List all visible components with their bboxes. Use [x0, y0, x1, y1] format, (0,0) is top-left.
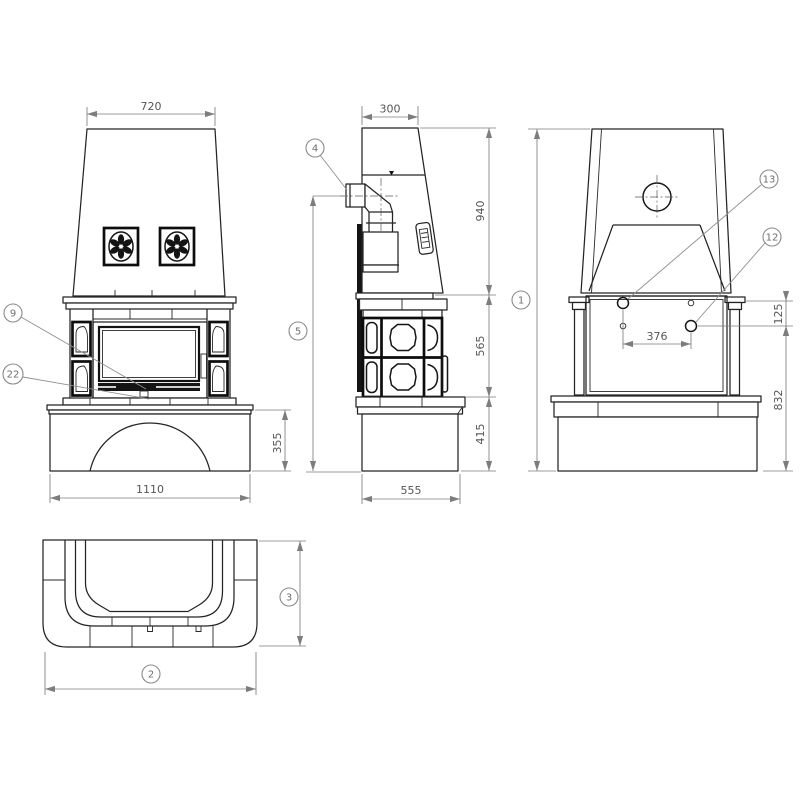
- svg-text:12: 12: [766, 233, 779, 244]
- vent-grille-left: [104, 228, 138, 265]
- base: [47, 405, 253, 471]
- outlet-hole-right: [686, 321, 697, 332]
- dim-label-555: 555: [401, 484, 422, 497]
- tile-grid-side: [363, 318, 448, 397]
- svg-text:2: 2: [148, 670, 154, 681]
- rear-view: 376 125 832 1 13 12: [512, 129, 793, 471]
- dim-body-height: 565: [466, 295, 496, 397]
- door-glass: [99, 327, 199, 381]
- dim-hood-top-depth: 300: [362, 103, 418, 126]
- callout-2: 2: [142, 665, 160, 683]
- door-handle: [116, 386, 156, 391]
- callout-4: 4: [306, 139, 347, 190]
- hood: [73, 129, 225, 296]
- hearth-shelf: [63, 398, 236, 405]
- air-louvre-top: [98, 383, 200, 386]
- fireplace-technical-drawing: 720 1110 355 9 22: [0, 0, 800, 800]
- hood-rear: [581, 129, 731, 296]
- callout-5: 5: [289, 322, 307, 340]
- dim-label-415: 415: [474, 424, 487, 445]
- dim-plinth-height: 415: [461, 397, 496, 471]
- front-view: 720 1110 355 9 22: [3, 100, 291, 503]
- dim-base-depth: 555: [362, 474, 460, 504]
- dim-label-565: 565: [474, 336, 487, 357]
- dim-outlet-floor-height: 832: [763, 326, 793, 471]
- dim-label-300: 300: [380, 103, 401, 116]
- base-side: [356, 397, 465, 471]
- ash-lip: [140, 391, 148, 397]
- svg-text:13: 13: [763, 175, 776, 186]
- svg-text:22: 22: [7, 370, 20, 381]
- dim-label-940: 940: [474, 201, 487, 222]
- svg-text:3: 3: [286, 593, 292, 604]
- dim-label-720: 720: [141, 100, 162, 113]
- side-view: 300 940 565 415 555 5: [289, 103, 496, 505]
- door-latch: [201, 354, 207, 378]
- dim-label-1110: 1110: [136, 483, 164, 496]
- svg-text:5: 5: [295, 327, 301, 338]
- technical-drawing-page: 720 1110 355 9 22: [0, 0, 800, 800]
- callout-3: 3: [280, 588, 298, 606]
- flue-outlet-hole: [635, 175, 679, 219]
- dim-flue-height: [306, 196, 361, 472]
- base-rear: [551, 396, 761, 471]
- dim-label-125: 125: [772, 304, 785, 325]
- shelf-side: [356, 293, 447, 318]
- svg-text:9: 9: [10, 309, 16, 320]
- dim-label-832: 832: [772, 390, 785, 411]
- firebox-side: [363, 232, 398, 272]
- svg-text:1: 1: [518, 296, 524, 307]
- vent-grille-right: [160, 228, 194, 265]
- dim-base-width: 1110: [50, 474, 250, 503]
- plan-tile-band: [65, 540, 234, 626]
- dim-hood-height: 940: [420, 128, 496, 295]
- fire-door: [93, 322, 207, 398]
- plan-inner-wall: [76, 540, 223, 617]
- callout-1: 1: [512, 291, 530, 309]
- pin-hole-right: [688, 300, 694, 306]
- dim-outlet-spacing: 376: [623, 310, 691, 349]
- cleanout-door: [415, 222, 433, 255]
- flue-elbow: [365, 184, 393, 212]
- plan-firebox-cavity: [86, 540, 213, 612]
- side-trims-rear: [569, 297, 745, 395]
- dim-base-height: 355: [252, 410, 291, 471]
- dim-label-376: 376: [647, 330, 668, 343]
- plan-view: 3 2: [43, 540, 306, 695]
- svg-text:4: 4: [312, 144, 318, 155]
- callout-13: 13: [628, 170, 778, 299]
- dim-hood-top-width: 720: [87, 100, 215, 126]
- dim-label-355: 355: [271, 433, 284, 454]
- mantel-cornice: [63, 297, 236, 309]
